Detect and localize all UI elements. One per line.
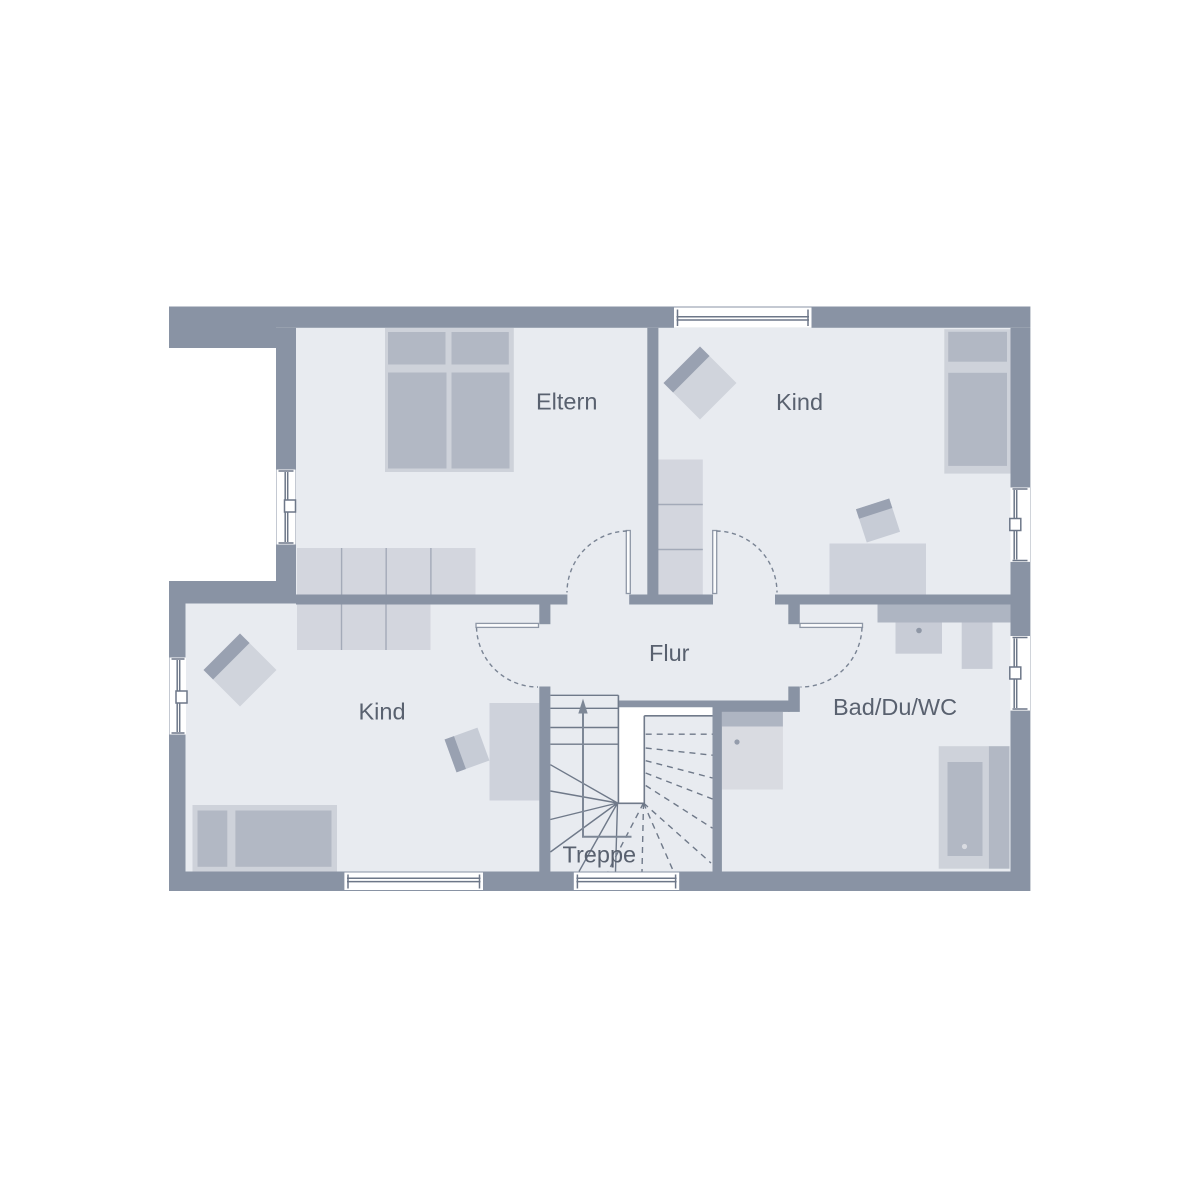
svg-text:Kind: Kind	[359, 699, 406, 725]
svg-text:Flur: Flur	[649, 640, 690, 666]
svg-text:Eltern: Eltern	[536, 389, 597, 415]
svg-text:Treppe: Treppe	[563, 842, 637, 868]
svg-text:Bad/Du/WC: Bad/Du/WC	[833, 694, 957, 720]
svg-text:Kind: Kind	[776, 389, 823, 415]
